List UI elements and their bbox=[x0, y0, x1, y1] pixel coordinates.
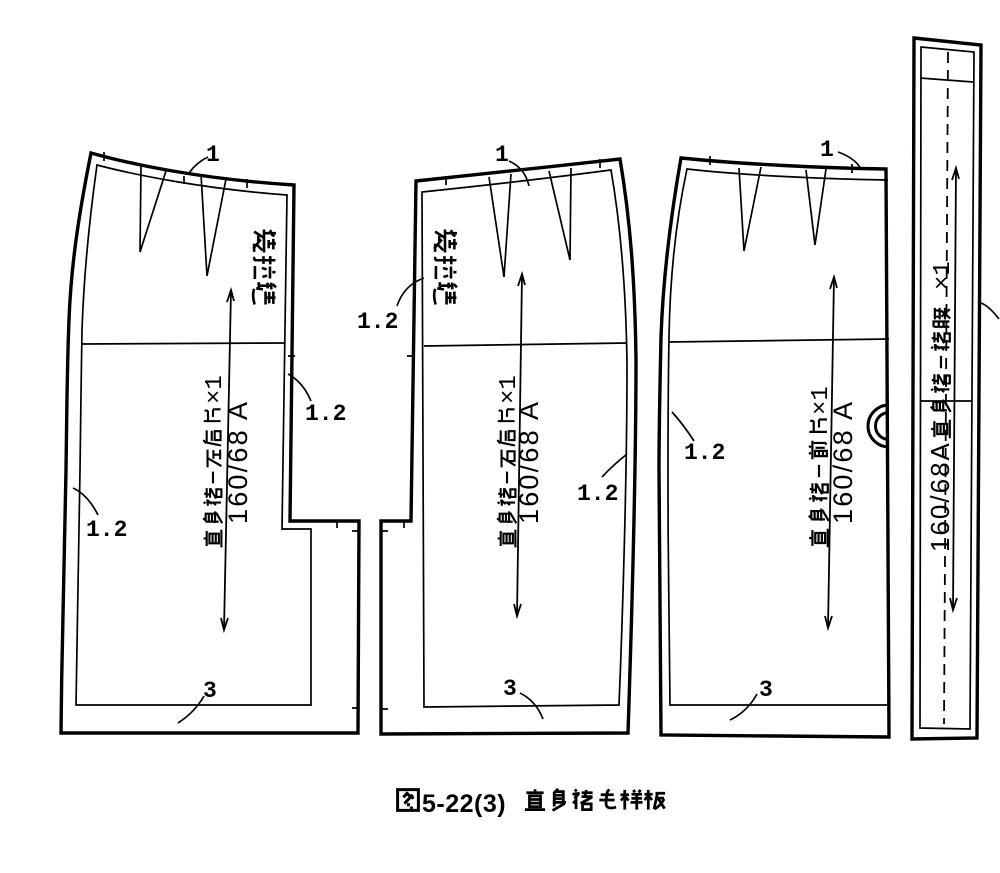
svg-text:160/68 A: 160/68 A bbox=[828, 400, 858, 524]
svg-text:×1: ×1 bbox=[930, 261, 957, 290]
svg-text:1: 1 bbox=[495, 142, 509, 168]
svg-text:1.2: 1.2 bbox=[86, 517, 127, 543]
svg-text:1.2: 1.2 bbox=[357, 309, 398, 335]
svg-text:160/68A: 160/68A bbox=[925, 441, 955, 552]
svg-text:1: 1 bbox=[206, 142, 220, 168]
svg-text:1.2: 1.2 bbox=[305, 401, 346, 427]
svg-text:1.2: 1.2 bbox=[577, 481, 618, 507]
svg-text:×1: ×1 bbox=[496, 375, 523, 404]
svg-text:3: 3 bbox=[759, 677, 773, 703]
svg-text:×1: ×1 bbox=[202, 375, 229, 404]
svg-text:160/68 A: 160/68 A bbox=[514, 400, 544, 524]
svg-text:1.2: 1.2 bbox=[684, 440, 725, 466]
svg-text:5-22(3): 5-22(3) bbox=[422, 790, 506, 818]
svg-text:3: 3 bbox=[203, 678, 217, 704]
svg-text:1: 1 bbox=[820, 137, 834, 163]
svg-text:160/68 A: 160/68 A bbox=[223, 400, 253, 524]
svg-text:3: 3 bbox=[503, 676, 517, 702]
